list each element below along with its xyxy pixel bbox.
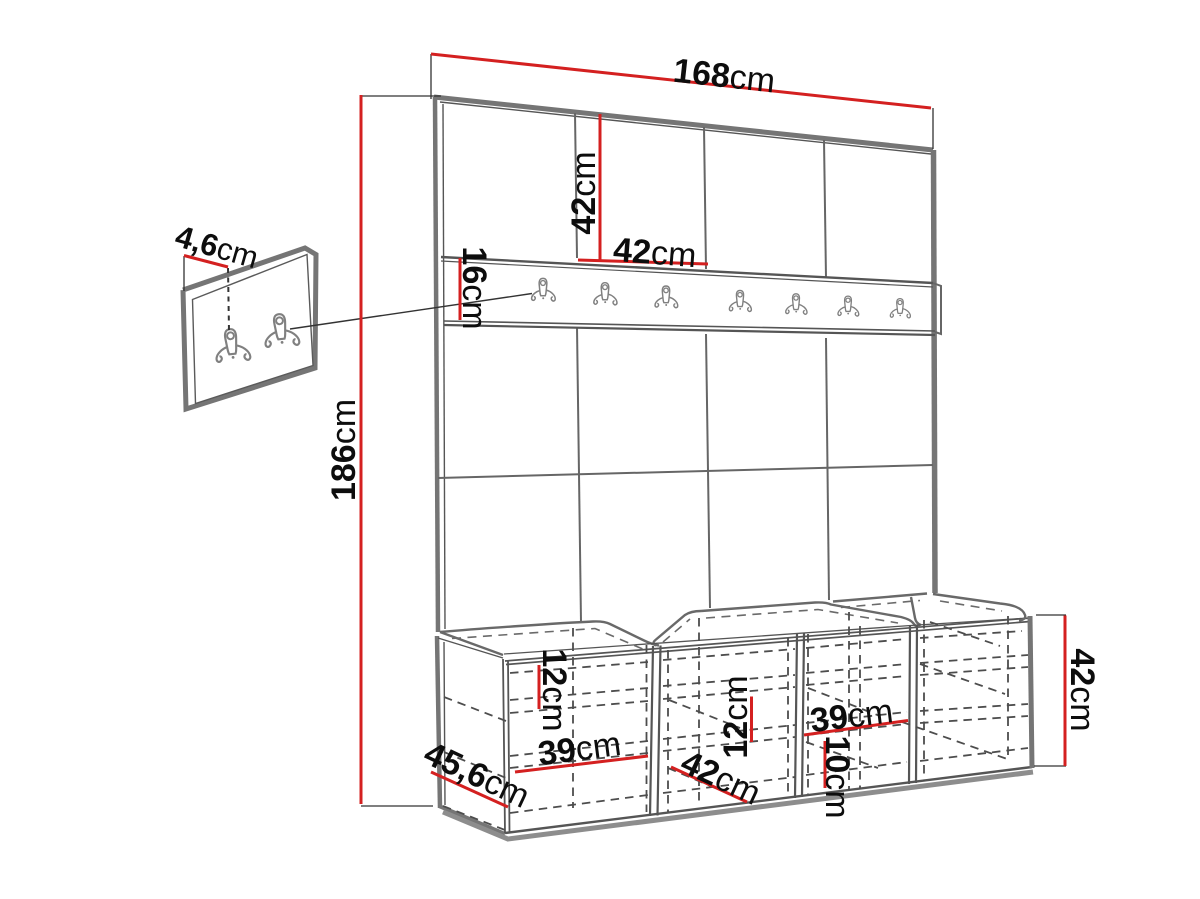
svg-text:45,6cm: 45,6cm [418,734,535,816]
svg-text:4,6cm: 4,6cm [171,218,262,275]
svg-text:39cm: 39cm [536,725,623,774]
svg-text:42cm: 42cm [565,151,603,234]
svg-text:12cm: 12cm [535,648,573,731]
svg-text:42cm: 42cm [1063,648,1101,731]
svg-text:42cm: 42cm [612,231,698,275]
svg-text:12cm: 12cm [717,675,755,758]
svg-text:10cm: 10cm [818,735,856,818]
svg-text:39cm: 39cm [808,692,895,740]
svg-text:186cm: 186cm [325,399,363,501]
svg-text:168cm: 168cm [671,52,777,101]
svg-text:16cm: 16cm [455,246,493,329]
